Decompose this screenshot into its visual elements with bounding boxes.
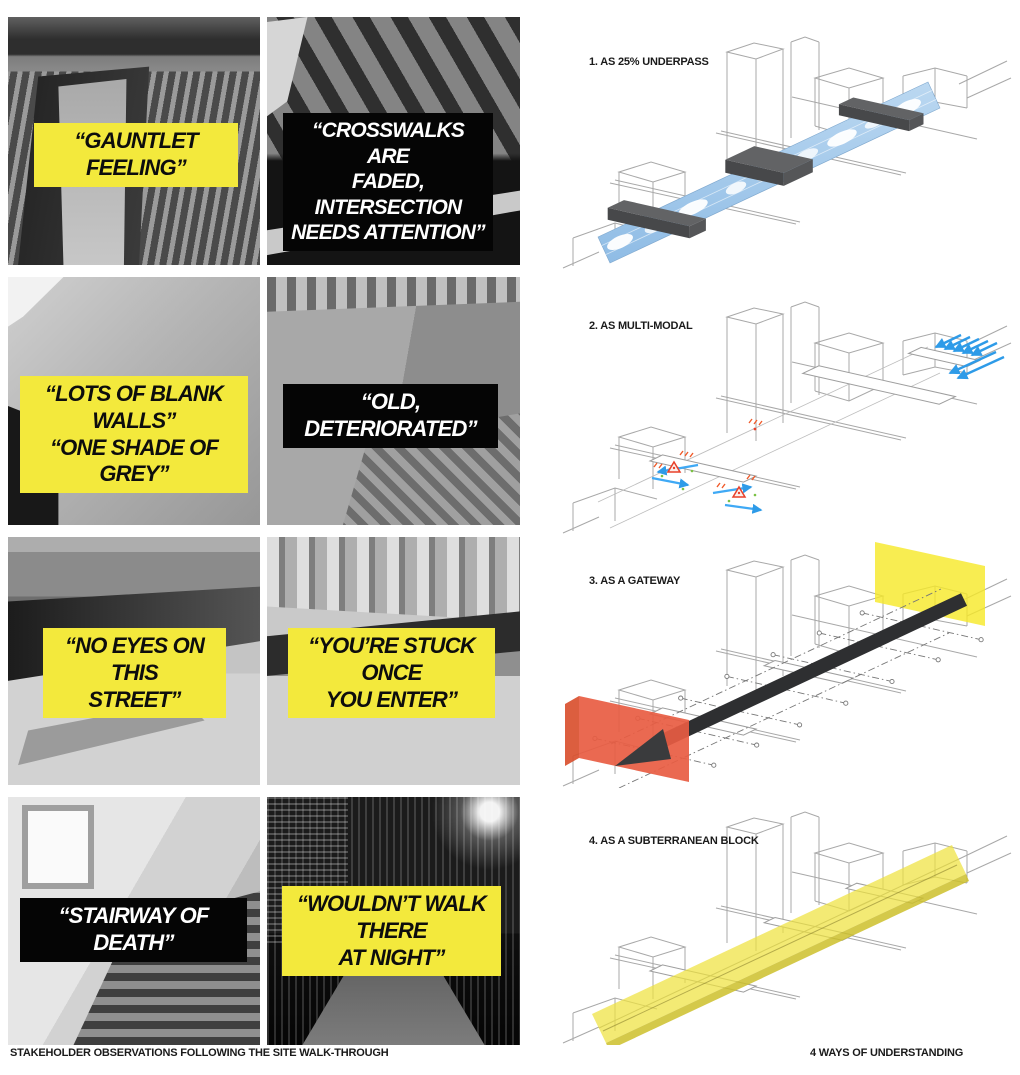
quote-banner-stairway: “STAIRWAY OF DEATH” <box>20 898 247 962</box>
presentation-board: “GAUNTLET FEELING” “CROSSWALKS ARE FADED… <box>0 0 1020 1075</box>
quote-banner-night: “WOULDN’T WALK THERE AT NIGHT” <box>282 886 501 976</box>
gateway-strip <box>651 593 967 751</box>
quote-banner-blank-walls: “LOTS OF BLANK WALLS” “ONE SHADE OF GREY… <box>20 376 248 493</box>
photo-stairway: “STAIRWAY OF DEATH” <box>8 797 260 1045</box>
quote-banner-stuck: “YOU’RE STUCK ONCE YOU ENTER” <box>288 628 495 718</box>
diagram-4-label: 4. AS A SUBTERRANEAN BLOCK <box>589 835 759 847</box>
diagram-gateway: 3. AS A GATEWAY <box>558 538 1020 788</box>
yellow-strip <box>592 845 969 1045</box>
photo-blank-wall: “LOTS OF BLANK WALLS” “ONE SHADE OF GREY… <box>8 277 260 525</box>
diagram-underpass: 1. AS 25% UNDERPASS <box>558 20 1020 270</box>
photo-night-street: “WOULDN’T WALK THERE AT NIGHT” <box>267 797 520 1045</box>
quote-banner-crosswalks: “CROSSWALKS ARE FADED, INTERSECTION NEED… <box>283 113 493 251</box>
photo-deteriorated-wall: “OLD, DETERIORATED” <box>267 277 520 525</box>
diagram-3-label: 3. AS A GATEWAY <box>589 575 680 587</box>
photo-bridge-crosswalk: “CROSSWALKS ARE FADED, INTERSECTION NEED… <box>267 17 520 265</box>
quote-banner-gauntlet: “GAUNTLET FEELING” <box>34 123 238 187</box>
quote-banner-old-deteriorated: “OLD, DETERIORATED” <box>283 384 498 448</box>
diagram-multi-modal: 2. AS MULTI-MODAL <box>558 285 1020 535</box>
red-plane <box>565 696 689 782</box>
right-caption: 4 WAYS OF UNDERSTANDING <box>810 1047 963 1059</box>
diagram-1-label: 1. AS 25% UNDERPASS <box>589 56 709 68</box>
crossing-bars <box>650 347 980 482</box>
diagram-subterranean: 4. AS A SUBTERRANEAN BLOCK <box>558 795 1020 1045</box>
photo-underpass-street: “NO EYES ON THIS STREET” <box>8 537 260 785</box>
photo-grid: “GAUNTLET FEELING” “CROSSWALKS ARE FADED… <box>8 17 520 1045</box>
diagram-4-drawing <box>558 795 1020 1045</box>
diagram-2-label: 2. AS MULTI-MODAL <box>589 320 693 332</box>
left-caption: STAKEHOLDER OBSERVATIONS FOLLOWING THE S… <box>10 1047 388 1059</box>
quote-banner-no-eyes: “NO EYES ON THIS STREET” <box>43 628 226 718</box>
photo-underpass-downtown: “YOU’RE STUCK ONCE YOU ENTER” <box>267 537 520 785</box>
photo-aerial-underpass: “GAUNTLET FEELING” <box>8 17 260 265</box>
